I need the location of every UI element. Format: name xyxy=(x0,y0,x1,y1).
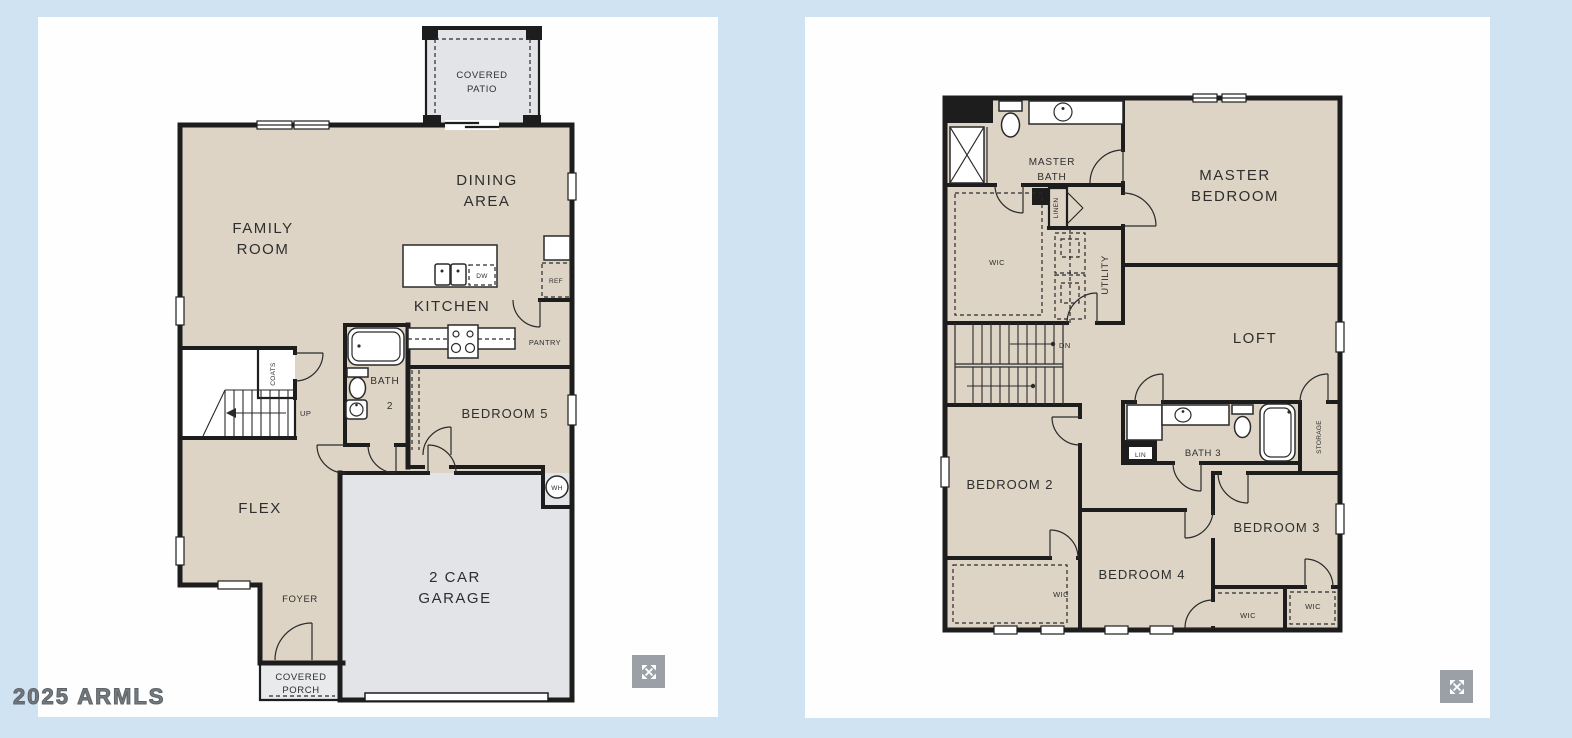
stair-void-area xyxy=(183,350,295,436)
label-pantry: PANTRY xyxy=(529,338,561,347)
sink-counter xyxy=(1162,405,1229,425)
label-wic-bedroom4: WIC xyxy=(1240,611,1256,620)
room-label-covered-porch: PORCH xyxy=(282,685,319,696)
sink xyxy=(346,400,367,419)
room-label-loft: LOFT xyxy=(1233,330,1277,347)
label-linen: LINEN xyxy=(1053,198,1060,219)
room-label-covered-patio: PATIO xyxy=(467,84,497,95)
room-label-kitchen: KITCHEN xyxy=(414,298,490,315)
label-stairs-down: DN xyxy=(1059,341,1071,350)
counter-niche xyxy=(544,236,570,260)
wall-block xyxy=(945,98,993,123)
expand-icon xyxy=(637,660,661,684)
room-label-garage: 2 CAR xyxy=(429,569,481,586)
kitchen-island xyxy=(403,245,497,287)
bathtub xyxy=(348,328,404,365)
room-label-foyer: FOYER xyxy=(282,594,318,605)
first-floor-plan-drawing: FAMILY ROOM DINING AREA COVERED PATIO KI… xyxy=(38,17,718,717)
room-label-storage: STORAGE xyxy=(1316,420,1323,454)
label-wic-bedroom2: WIC xyxy=(1053,590,1069,599)
label-wic-bedroom3: WIC xyxy=(1305,602,1321,611)
room-label-bath-2: BATH xyxy=(370,376,399,387)
shower xyxy=(1127,405,1162,440)
floorplan-gallery: FAMILY ROOM DINING AREA COVERED PATIO KI… xyxy=(0,0,1572,738)
room-label-family-room: FAMILY xyxy=(232,220,293,237)
second-floor-plan-drawing: MASTER BATH MASTER BEDROOM WIC LINEN UTI… xyxy=(805,17,1490,718)
label-water-heater: WH xyxy=(551,485,562,492)
garage-area xyxy=(340,473,572,700)
range-stove xyxy=(448,325,478,358)
label-lin-closet: LIN xyxy=(1135,452,1146,459)
room-label-bath-3: BATH 3 xyxy=(1185,448,1221,459)
second-floor-plan-panel: MASTER BATH MASTER BEDROOM WIC LINEN UTI… xyxy=(805,17,1490,718)
room-label-dining-area: DINING xyxy=(456,172,518,189)
bathtub xyxy=(1260,404,1295,461)
room-label-bedroom-2: BEDROOM 2 xyxy=(966,477,1053,492)
toilet xyxy=(347,368,368,399)
room-label-flex: FLEX xyxy=(238,500,282,517)
room-label-family-room: ROOM xyxy=(237,241,290,258)
expand-icon xyxy=(1445,675,1469,699)
toilet xyxy=(1232,405,1253,438)
room-label-bedroom-4: BEDROOM 4 xyxy=(1098,567,1185,582)
wall-block xyxy=(1032,188,1049,205)
expand-button-second-floor[interactable] xyxy=(1440,670,1473,703)
expand-button-first-floor[interactable] xyxy=(632,655,665,688)
room-label-covered-porch: COVERED xyxy=(275,672,326,683)
room-label-bedroom-5: BEDROOM 5 xyxy=(461,406,548,421)
room-label-master-bedroom: BEDROOM xyxy=(1191,188,1279,205)
room-label-utility: UTILITY xyxy=(1100,255,1111,295)
label-refrigerator: REF xyxy=(549,278,563,285)
sliding-door xyxy=(445,120,499,130)
room-label-covered-patio: COVERED xyxy=(456,70,507,81)
garage-door xyxy=(365,693,548,701)
room-label-bedroom-3: BEDROOM 3 xyxy=(1233,520,1320,535)
room-label-garage: GARAGE xyxy=(418,590,491,607)
label-coats-closet: COATS xyxy=(270,362,277,386)
room-label-master-bath: BATH xyxy=(1037,172,1066,183)
sink-counter xyxy=(1029,101,1123,124)
room-label-bath-2: 2 xyxy=(387,401,393,412)
shower xyxy=(950,127,987,183)
toilet xyxy=(999,101,1022,137)
armls-watermark: 2025 ARMLS xyxy=(13,684,165,710)
room-label-master-bedroom: MASTER xyxy=(1199,167,1271,184)
label-dishwasher: DW xyxy=(476,273,488,280)
label-stairs-up: UP xyxy=(300,409,311,418)
first-floor-plan-panel: FAMILY ROOM DINING AREA COVERED PATIO KI… xyxy=(38,17,718,717)
room-label-wic-master: WIC xyxy=(989,258,1005,267)
room-label-dining-area: AREA xyxy=(464,193,511,210)
patio-post xyxy=(422,26,438,40)
room-label-master-bath: MASTER xyxy=(1029,157,1075,168)
